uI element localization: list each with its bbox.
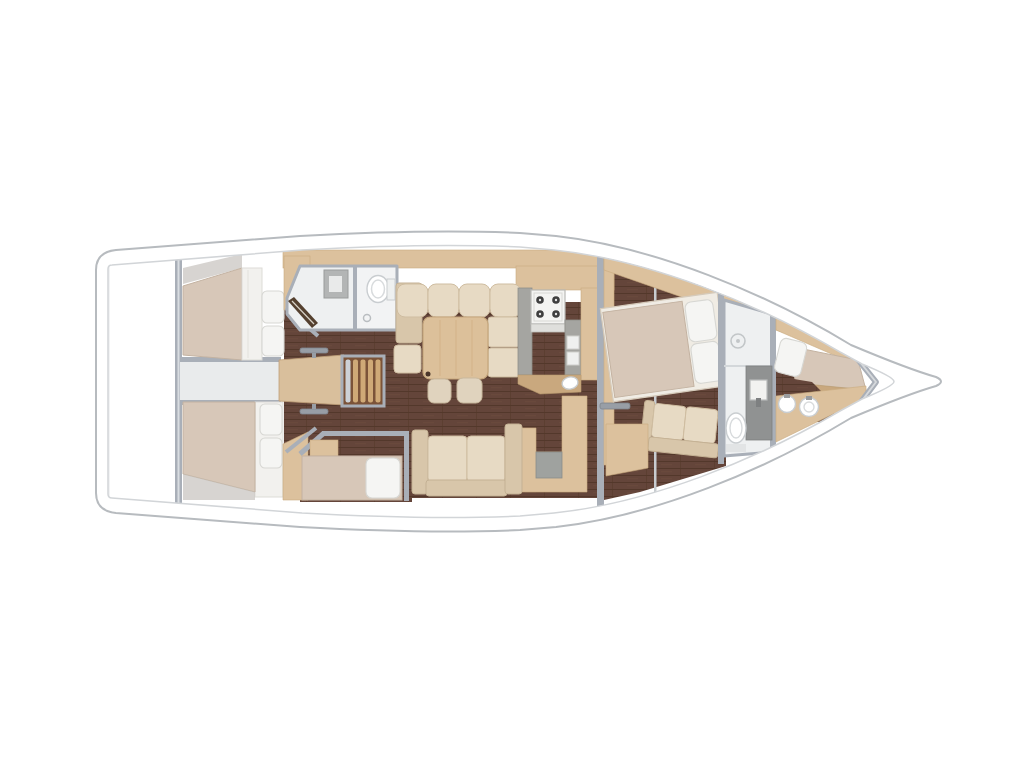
chart-table-desk: [536, 452, 562, 478]
shower-pan-inner: [329, 276, 342, 292]
pillow: [684, 299, 717, 343]
burner-cap: [555, 299, 557, 301]
back-cushion: [490, 284, 521, 317]
floor-plan-canvas: [0, 0, 1024, 768]
round-basin: [779, 396, 796, 413]
saloon-forward-bulkhead: [597, 248, 604, 510]
port-cabin-door-handle: [300, 348, 328, 353]
pillow: [260, 404, 282, 435]
back-cushion: [459, 284, 490, 317]
vanity-faucet-icon: [756, 398, 761, 407]
berth-mattress: [603, 301, 694, 397]
yacht-floor-plan: [0, 0, 1024, 768]
bunk-cabin-wall-top: [322, 431, 408, 436]
engine-box-platform: [279, 355, 344, 405]
pillow: [366, 458, 400, 498]
aft-bulkhead-highlight: [178, 252, 180, 512]
sofa-cushion: [651, 403, 686, 440]
u-settee-side-seat: [488, 348, 520, 377]
bunk-locker: [310, 440, 338, 456]
bunk-cabin-wall-right: [404, 431, 409, 501]
island-double-berth: [600, 292, 730, 402]
back-cushion: [428, 284, 459, 317]
settee-ottoman: [394, 345, 421, 373]
port-cabin-door-hinge: [312, 353, 316, 358]
stool: [457, 378, 482, 403]
interior: [96, 248, 876, 512]
round-basin: [800, 398, 819, 417]
starboard-cabin-door-hinge: [312, 404, 316, 409]
forward-head: [718, 292, 776, 464]
sink-cover: [567, 352, 579, 365]
pillow: [262, 291, 284, 323]
berth-sheet: [242, 268, 262, 360]
pillow: [260, 438, 282, 468]
settee-arm-right: [505, 424, 522, 494]
burner-cap: [555, 313, 557, 315]
pillow: [262, 326, 284, 356]
step: [368, 360, 373, 403]
seat-bench: [606, 424, 648, 476]
stool: [428, 379, 451, 403]
forward-cabin-door-handle: [600, 403, 630, 409]
toilet-base: [726, 444, 746, 452]
shower-drain-center: [736, 339, 740, 343]
toilet-tank: [387, 279, 395, 300]
table-leg-mark: [426, 372, 431, 377]
step: [361, 360, 366, 403]
burner-cap: [539, 313, 541, 315]
stove: [531, 290, 565, 324]
basin-faucet-icon: [784, 394, 790, 398]
starboard-cabin-door-handle: [300, 409, 328, 414]
sofa-cushion: [683, 407, 718, 444]
sink-cover: [567, 336, 579, 349]
step: [346, 360, 351, 403]
step: [353, 360, 358, 403]
settee-cushion: [428, 436, 467, 482]
step: [376, 360, 381, 403]
settee-cushion: [467, 436, 505, 482]
burner-cap: [539, 299, 541, 301]
engine-corridor: [180, 362, 281, 400]
forward-cabin-sofa: [640, 400, 723, 458]
galley-counter-left: [518, 288, 532, 375]
vanity-sink: [750, 380, 767, 400]
oven-front: [531, 324, 565, 332]
settee-back: [426, 480, 507, 496]
u-settee-side-seat: [488, 317, 520, 347]
aft-head: [287, 266, 397, 330]
galley-tall-locker: [581, 288, 598, 380]
back-cushion: [397, 284, 428, 317]
basin-faucet-icon: [806, 396, 812, 400]
